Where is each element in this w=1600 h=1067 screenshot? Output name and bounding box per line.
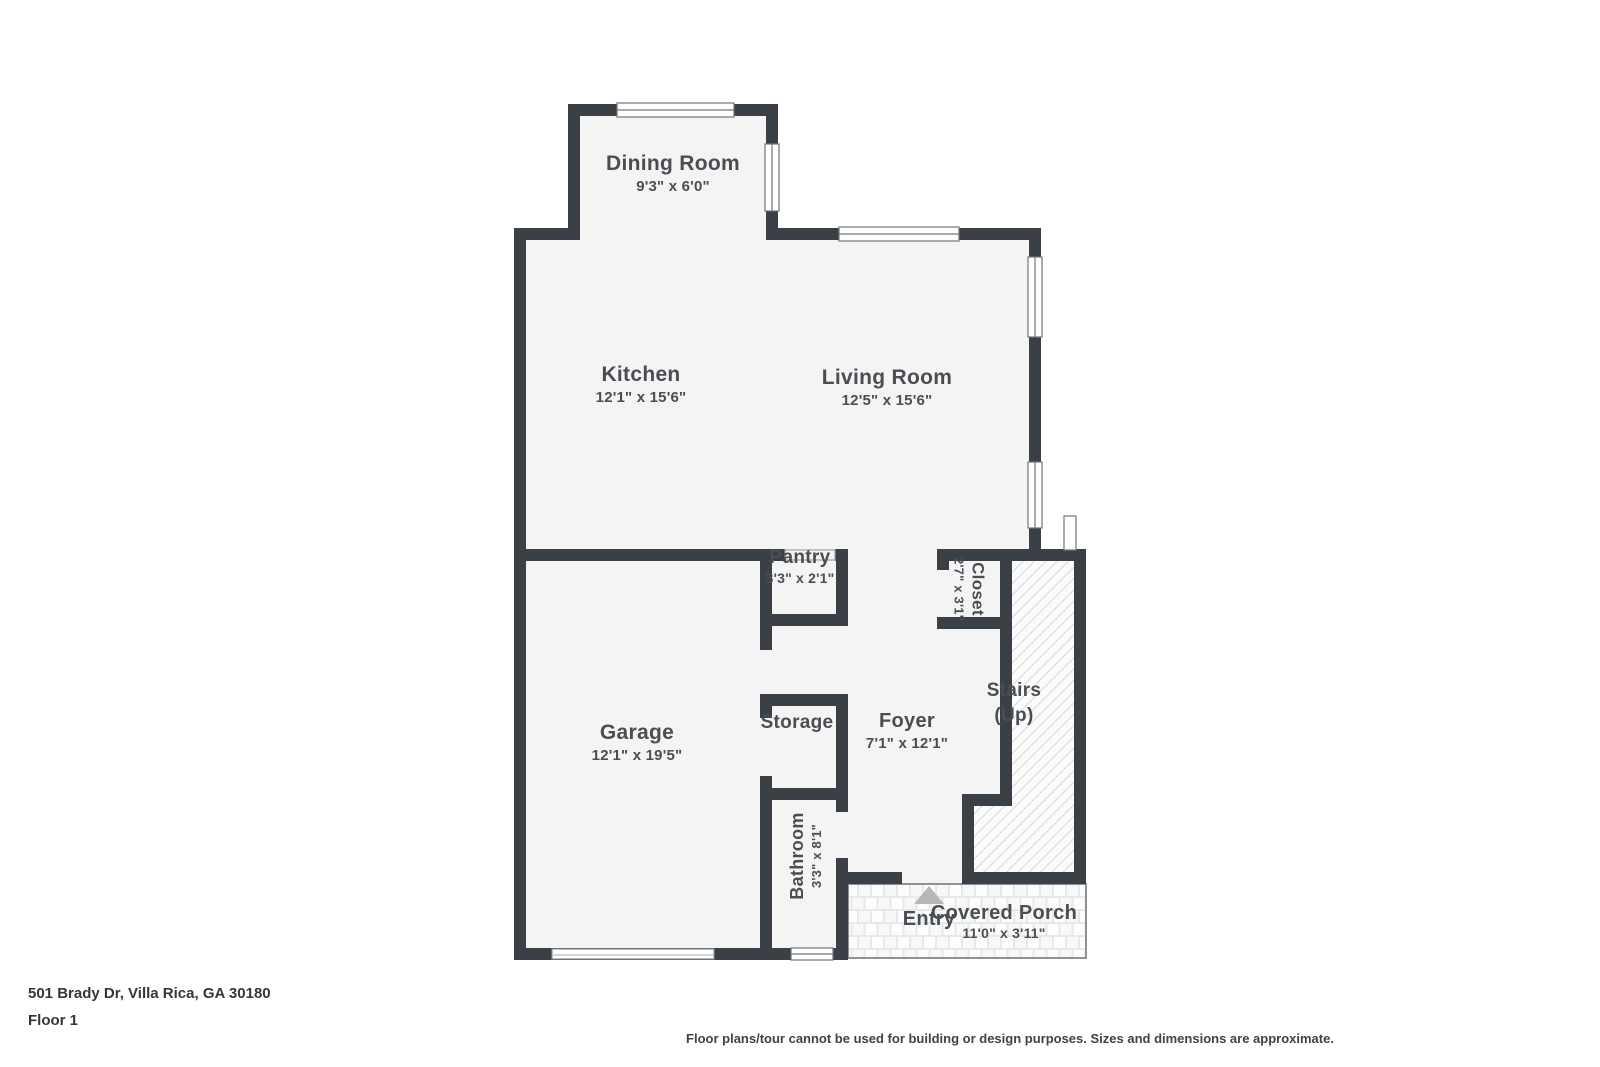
room-label-garage: Garage 12'1" x 19'5" [592, 719, 683, 766]
dining-top-window [617, 103, 734, 117]
room-title: Closet [966, 562, 988, 616]
stair-bumpout-window [1064, 516, 1076, 550]
bathroom-window [791, 948, 833, 960]
room-title: Foyer [879, 708, 935, 734]
room-dims: 3'3" x 2'1" [766, 570, 835, 587]
room-title: Covered Porch [931, 901, 1077, 925]
floorplan-svg [0, 0, 1600, 1067]
room-label-dining: Dining Room 9'3" x 6'0" [606, 150, 740, 197]
living-right-window-upper [1028, 257, 1042, 337]
room-label-closet: Closet 2'7" x 3'1" [950, 557, 989, 621]
room-label-pantry: Pantry 3'3" x 2'1" [766, 547, 835, 587]
room-dims: 11'0" x 3'11" [962, 925, 1045, 942]
floorplan-page: Dining Room 9'3" x 6'0" Kitchen 12'1" x … [0, 0, 1600, 1067]
room-title: Living Room [822, 364, 952, 391]
room-title: Storage [761, 711, 834, 736]
room-title: Pantry [770, 547, 831, 570]
room-dims: 12'1" x 15'6" [596, 388, 687, 408]
room-title: Bathroom [786, 812, 809, 899]
dining-right-window [765, 144, 779, 211]
room-dims: 2'7" x 3'1" [950, 557, 967, 621]
room-label-living: Living Room 12'5" x 15'6" [822, 364, 952, 411]
room-title: Dining Room [606, 150, 740, 177]
room-dims: 3'3" x 8'1" [809, 824, 826, 888]
room-dims: 7'1" x 12'1" [866, 734, 948, 754]
living-top-window [839, 227, 959, 241]
room-title: Kitchen [601, 361, 680, 388]
address-text: 501 Brady Dr, Villa Rica, GA 30180 [28, 985, 271, 1002]
room-dims: 9'3" x 6'0" [636, 177, 710, 197]
room-label-covered-porch: Covered Porch 11'0" x 3'11" [931, 901, 1077, 942]
room-title: Stairs [987, 679, 1042, 704]
room-dims: 12'5" x 15'6" [842, 391, 933, 411]
room-label-foyer: Foyer 7'1" x 12'1" [866, 708, 948, 754]
garage-door [552, 949, 714, 959]
room-label-storage: Storage [761, 711, 834, 736]
living-right-window-lower [1028, 462, 1042, 528]
room-dims: 12'1" x 19'5" [592, 746, 683, 766]
room-label-bathroom: Bathroom 3'3" x 8'1" [786, 812, 826, 899]
room-subtitle: (Up) [994, 704, 1033, 729]
disclaimer-text: Floor plans/tour cannot be used for buil… [540, 1031, 1480, 1046]
room-label-kitchen: Kitchen 12'1" x 15'6" [596, 361, 687, 408]
floor-label: Floor 1 [28, 1012, 78, 1029]
room-label-stairs: Stairs (Up) [987, 679, 1042, 728]
room-title: Garage [600, 719, 674, 746]
